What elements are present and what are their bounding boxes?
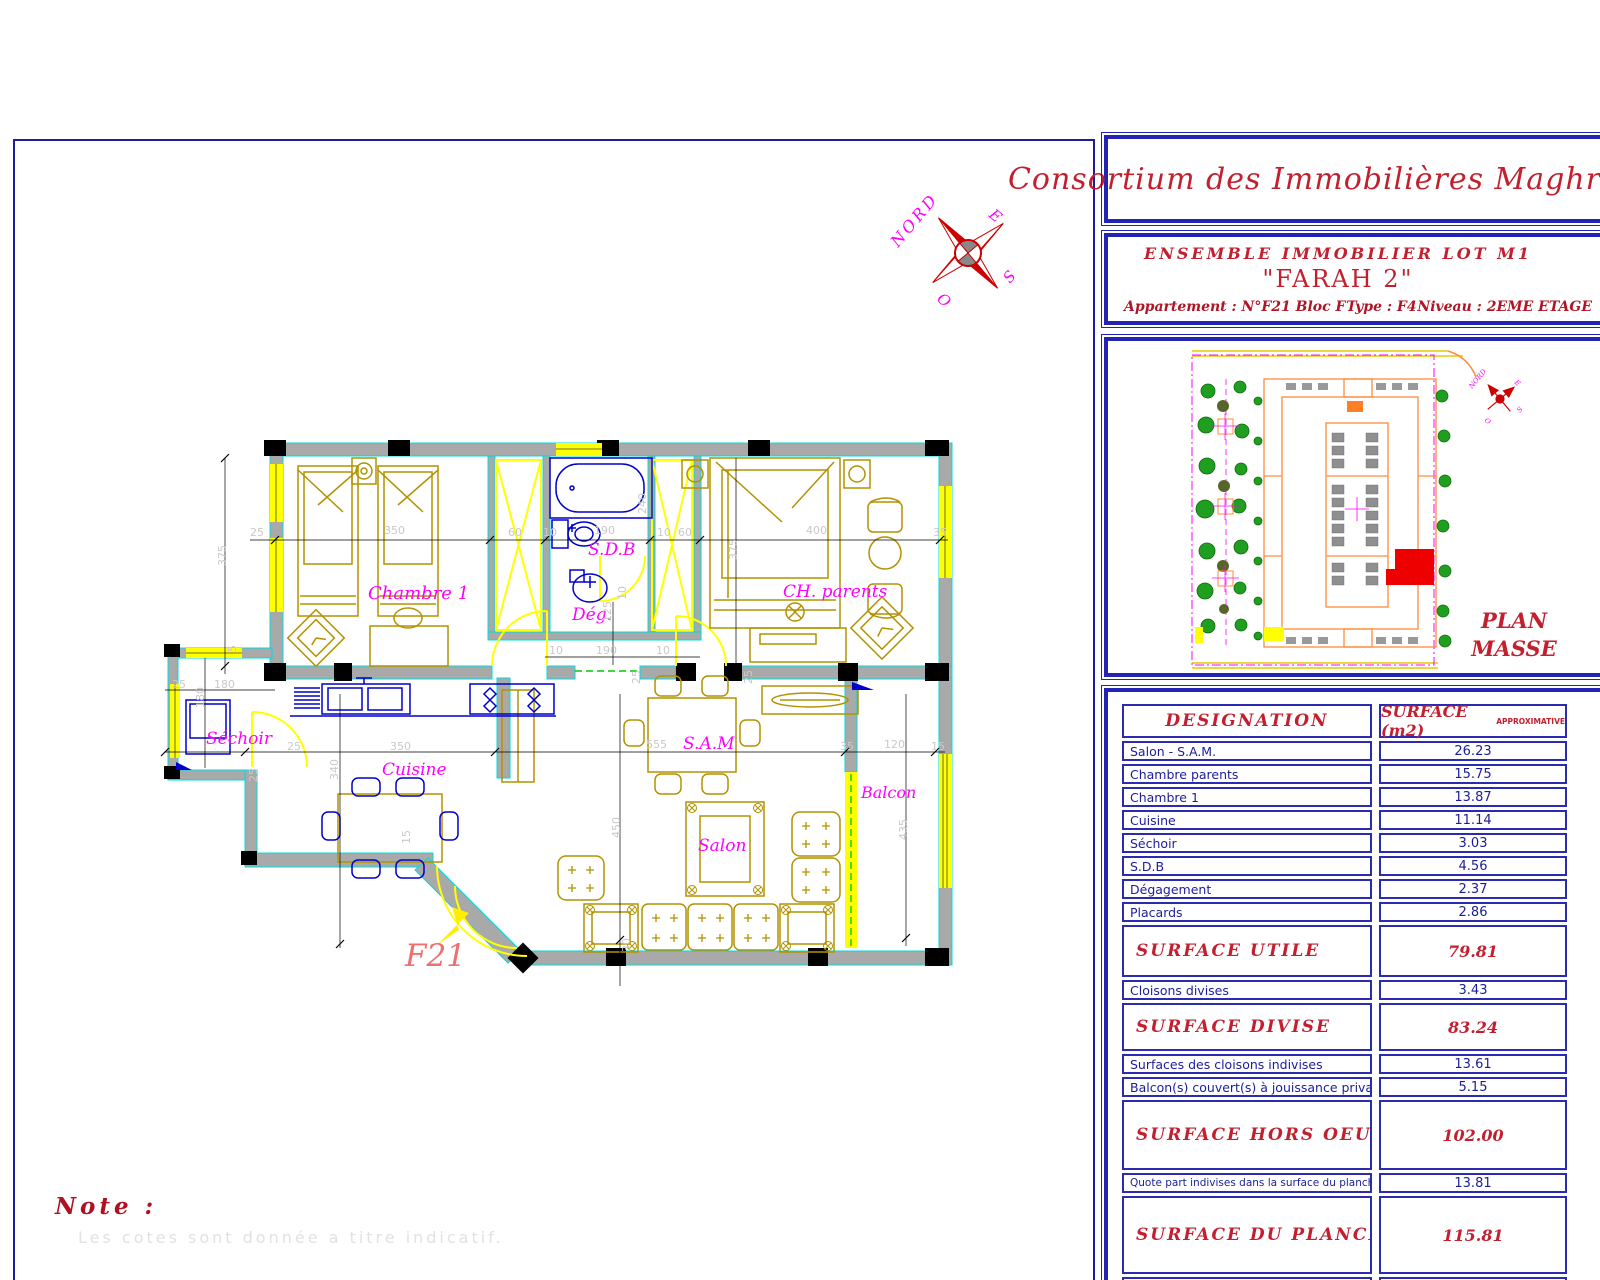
svg-text:O: O (1483, 416, 1493, 426)
surface-value-cell: 2.37 (1379, 879, 1567, 899)
surface-header: SURFACE (m2) APPROXIMATIVE (1379, 704, 1567, 738)
table-row: Séchoir3.03 (1122, 833, 1600, 853)
svg-text:NORD: NORD (1467, 367, 1489, 391)
designation-cell: S.D.B (1122, 856, 1372, 876)
surface-value-cell: 13.81 (1379, 1173, 1567, 1193)
table-row: SURFACE HORS OEUVRE102.00 (1122, 1100, 1600, 1170)
designation-cell: Cuisine (1122, 810, 1372, 830)
surface-value-cell: 3.03 (1379, 833, 1567, 853)
table-row: S.D.B4.56 (1122, 856, 1600, 876)
walls (168, 443, 952, 965)
plan-masse-box: NORD E O S PLAN MASSE (1104, 337, 1600, 677)
surface-value-cell: 115.81 (1379, 1196, 1567, 1274)
designation-cell: SURFACE UTILE (1122, 925, 1372, 977)
project-title: ENSEMBLE IMMOBILIER LOT M1 (1108, 244, 1568, 263)
table-row: Cloisons divises3.43 (1122, 980, 1600, 1000)
designation-cell: Dégagement (1122, 879, 1372, 899)
surface-table-box: DESIGNATION SURFACE (m2) APPROXIMATIVE S… (1104, 688, 1600, 1280)
surface-rows: Salon - S.A.M.26.23Chambre parents15.75C… (1122, 741, 1600, 1280)
surface-value-cell: 5.15 (1379, 1077, 1567, 1097)
note-heading: Note : (55, 1193, 157, 1220)
project-info-box: ENSEMBLE IMMOBILIER LOT M1 "FARAH 2" App… (1104, 233, 1600, 325)
table-row: Surfaces des cloisons indivises13.61 (1122, 1054, 1600, 1074)
table-row: Chambre 113.87 (1122, 787, 1600, 807)
surface-value-cell: 3.43 (1379, 980, 1567, 1000)
compass-south: S (999, 267, 1019, 286)
designation-cell: SURFACE DU PLANCHER (1122, 1196, 1372, 1274)
type-info: Type : F4 (1346, 299, 1416, 315)
cad-sheet: NORD E O S Chambre 1S.D.BDég.CH. parents… (0, 0, 1600, 1280)
company-name: Consortium des Immobilières Maghrébines (1008, 162, 1600, 197)
designation-cell: Chambre 1 (1122, 787, 1372, 807)
designation-cell: SURFACE DIVISE (1122, 1003, 1372, 1051)
compass-north: NORD (886, 189, 942, 251)
apartment-info-row: Appartement : N°F21 Bloc F Type : F4 Niv… (1108, 299, 1600, 315)
designation-cell: Quote part indivises dans la surface du … (1122, 1173, 1372, 1193)
table-row: Chambre parents15.75 (1122, 764, 1600, 784)
table-row: Balcon(s) couvert(s) à jouissance privat… (1122, 1077, 1600, 1097)
svg-text:S: S (1515, 405, 1524, 414)
surface-value-cell: 83.24 (1379, 1003, 1567, 1051)
table-row: Placards2.86 (1122, 902, 1600, 922)
apartment-info: Appartement : N°F21 Bloc F (1124, 299, 1345, 315)
svg-text:E: E (1512, 378, 1522, 388)
project-name: "FARAH 2" (1108, 265, 1568, 293)
compass-west: O (933, 289, 954, 311)
designation-header: DESIGNATION (1122, 704, 1372, 738)
surface-value-cell: 2.86 (1379, 902, 1567, 922)
plan-masse-title: PLAN MASSE (1464, 607, 1564, 664)
table-row: Cuisine11.14 (1122, 810, 1600, 830)
surface-value-cell: 79.81 (1379, 925, 1567, 977)
designation-cell: Séchoir (1122, 833, 1372, 853)
surface-value-cell: 13.61 (1379, 1054, 1567, 1074)
designation-cell: Placards (1122, 902, 1372, 922)
surface-value-cell: 13.87 (1379, 787, 1567, 807)
note-text: Les cotes sont donnée a titre indicatif. (78, 1228, 504, 1247)
table-row: Salon - S.A.M.26.23 (1122, 741, 1600, 761)
niveau-info: Niveau : 2EME ETAGE (1417, 299, 1592, 315)
table-row: SURFACE DU PLANCHER115.81 (1122, 1196, 1600, 1274)
compass-icon: NORD E O S (886, 188, 1033, 318)
surface-value-cell: 11.14 (1379, 810, 1567, 830)
surface-value-cell: 102.00 (1379, 1100, 1567, 1170)
surface-value-cell: 15.75 (1379, 764, 1567, 784)
table-row: Dégagement2.37 (1122, 879, 1600, 899)
designation-cell: Cloisons divises (1122, 980, 1372, 1000)
surface-value-cell: 4.56 (1379, 856, 1567, 876)
designation-cell: Chambre parents (1122, 764, 1372, 784)
compass-east: E (985, 205, 1006, 227)
table-header-row: DESIGNATION SURFACE (m2) APPROXIMATIVE (1122, 704, 1600, 738)
table-row: SURFACE UTILE79.81 (1122, 925, 1600, 977)
mini-compass-icon: NORD E O S (1467, 367, 1525, 426)
unit-number-label: F21 (405, 938, 466, 974)
designation-cell: Surfaces des cloisons indivises (1122, 1054, 1372, 1074)
surface-value-cell: 26.23 (1379, 741, 1567, 761)
company-title-box: Consortium des Immobilières Maghrébines (1104, 135, 1600, 223)
table-row: SURFACE DIVISE83.24 (1122, 1003, 1600, 1051)
table-row: Quote part indivises dans la surface du … (1122, 1173, 1600, 1193)
designation-cell: Balcon(s) couvert(s) à jouissance privat… (1122, 1077, 1372, 1097)
designation-cell: Salon - S.A.M. (1122, 741, 1372, 761)
designation-cell: SURFACE HORS OEUVRE (1122, 1100, 1372, 1170)
